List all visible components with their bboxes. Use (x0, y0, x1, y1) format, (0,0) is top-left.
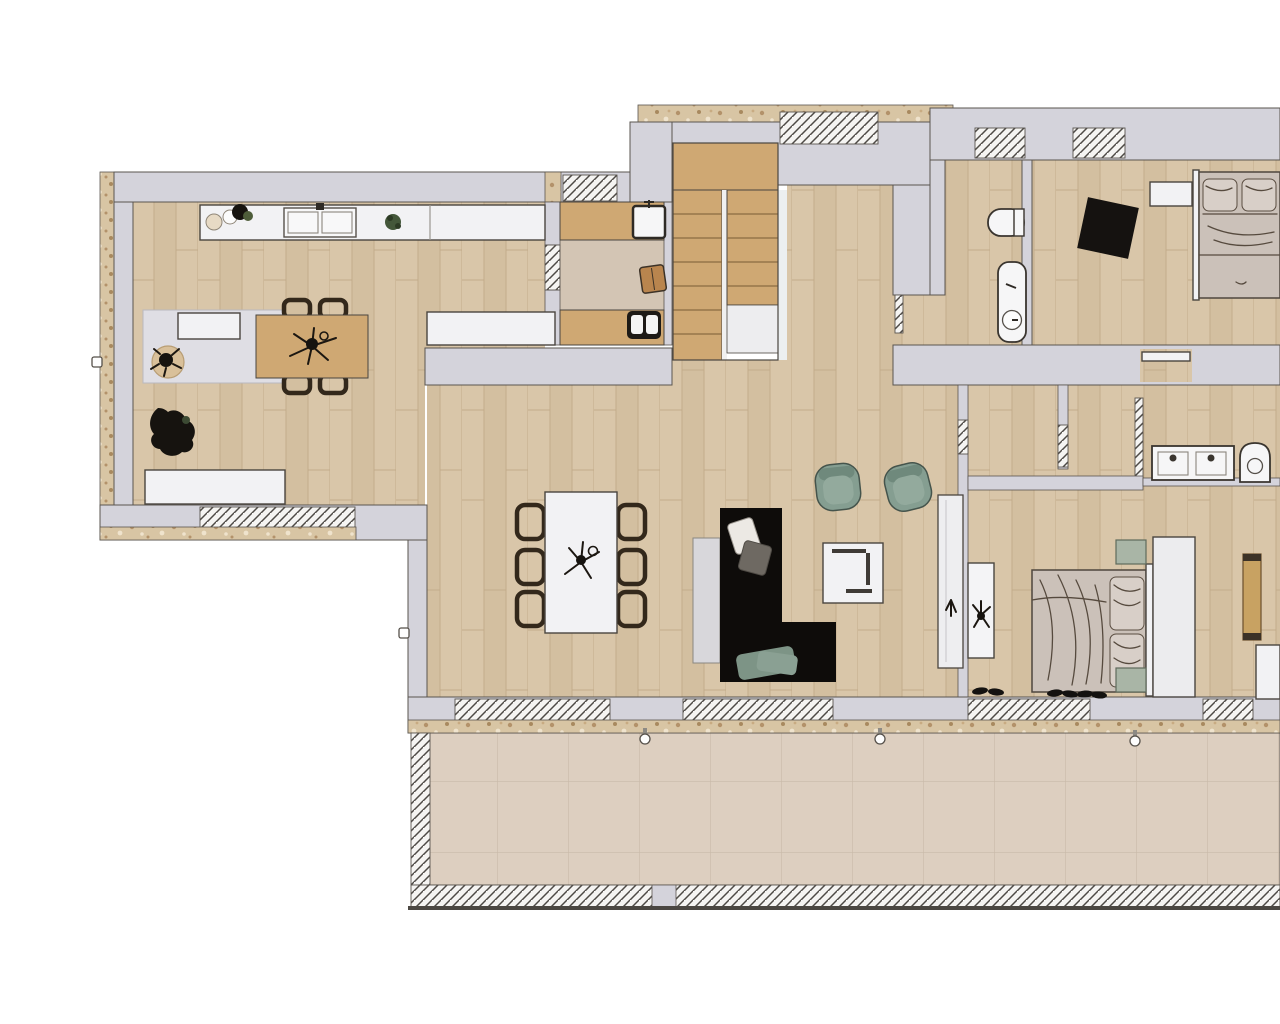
gray-floor-board (693, 538, 720, 663)
mudroom-stool (639, 264, 666, 293)
ensuite-toilet (1240, 443, 1270, 482)
kitchen-living-wall (425, 348, 672, 385)
terrace-tiles (427, 733, 1280, 885)
kitchen-lower-counter (427, 312, 555, 345)
stair-right-flight (727, 190, 778, 305)
south-window-d (1203, 699, 1253, 721)
master-nightstand-a (1116, 540, 1146, 564)
bedroom-top-pillow-b (1242, 179, 1276, 211)
stair-mid-landing (727, 305, 778, 353)
master-mirror (968, 563, 994, 658)
ensuite-tap-b (1208, 455, 1215, 462)
stair-stringer (722, 190, 727, 360)
bedroom-top-headboard (1193, 170, 1199, 300)
right-top-window-b (1073, 128, 1125, 158)
corridor-bedroom-wall (968, 476, 1143, 490)
kitchen-sink-tap (316, 203, 324, 210)
master-wardrobe (1153, 537, 1195, 697)
living-west-door-handle (399, 628, 409, 638)
south-window-b (683, 699, 833, 721)
master-pillow-a (1110, 577, 1144, 630)
bedroom-top-bed (1199, 172, 1280, 298)
kitchen-white-sideboard (145, 470, 285, 504)
floor-plan-stage (0, 0, 1280, 1024)
wc-left-wall (930, 160, 945, 295)
living-left-wall (408, 540, 427, 697)
coffee-table (823, 543, 883, 603)
bedroom-door-leaf (1142, 352, 1190, 361)
stair-side-strip (778, 190, 787, 360)
left-outer-stone-wall (100, 172, 114, 540)
pantry-sideboard (178, 313, 240, 339)
ensuite-vanity (1152, 446, 1234, 480)
terrace-left-rail (411, 733, 430, 885)
master-headboard (1146, 564, 1153, 696)
bedroom-top-pillow-a (1203, 179, 1237, 211)
mudroom-top-window (563, 175, 617, 201)
black-diamond-rug (1077, 197, 1139, 259)
middle-wall-band (893, 345, 1280, 385)
stair-upper-landing (673, 143, 778, 190)
top-wall-stone-block (545, 172, 561, 202)
kitchen-bottom-window (200, 507, 355, 529)
entry-hall-floor (787, 185, 893, 385)
hall-right-wall (893, 185, 930, 295)
kitchen-floor-plant-leaf (182, 416, 190, 424)
master-corner-shelf (1256, 645, 1280, 699)
entry-window (780, 112, 878, 144)
living-bedroom-door (958, 420, 968, 454)
left-wall (114, 172, 133, 540)
terrace-rail-post (652, 885, 676, 908)
west-door-handle (92, 357, 102, 367)
tall-white-cabinet (938, 495, 963, 668)
terrace-edge-line (408, 906, 1280, 910)
master-bench (1243, 554, 1261, 640)
bathroom-door-opening (1135, 398, 1143, 478)
south-window-c (968, 699, 1090, 721)
kitchen-counter (200, 205, 545, 240)
wc-toilet-tank (1014, 209, 1024, 236)
bedroom-top-nightstand (1150, 182, 1192, 206)
master-nightstand-b (1116, 668, 1146, 692)
ensuite-tap-a (1170, 455, 1177, 462)
floor-plan-svg (0, 0, 1280, 1024)
terrace-bottom-rail (411, 885, 1280, 908)
tower-left-column (630, 122, 672, 202)
armchair-a (814, 462, 863, 512)
south-stone-sill (408, 720, 1280, 733)
kitchen-sink (284, 203, 356, 237)
staircase (673, 143, 787, 360)
mudroom-left-wall-a (545, 202, 560, 245)
mudroom-door-opening (545, 245, 560, 290)
mudroom-basin (633, 206, 665, 238)
kitchen-bottom-stone (100, 527, 356, 540)
corridor-bath-door (1058, 425, 1068, 467)
understair-floor (672, 360, 787, 385)
counter-plant-b (385, 214, 401, 230)
counter-plate-a (206, 214, 222, 230)
washing-machine-icon (627, 311, 661, 339)
south-window-a (455, 699, 610, 721)
right-top-window-a (975, 128, 1025, 158)
hall-door-opening (895, 295, 903, 333)
ensuite-bathroom (1152, 443, 1270, 482)
